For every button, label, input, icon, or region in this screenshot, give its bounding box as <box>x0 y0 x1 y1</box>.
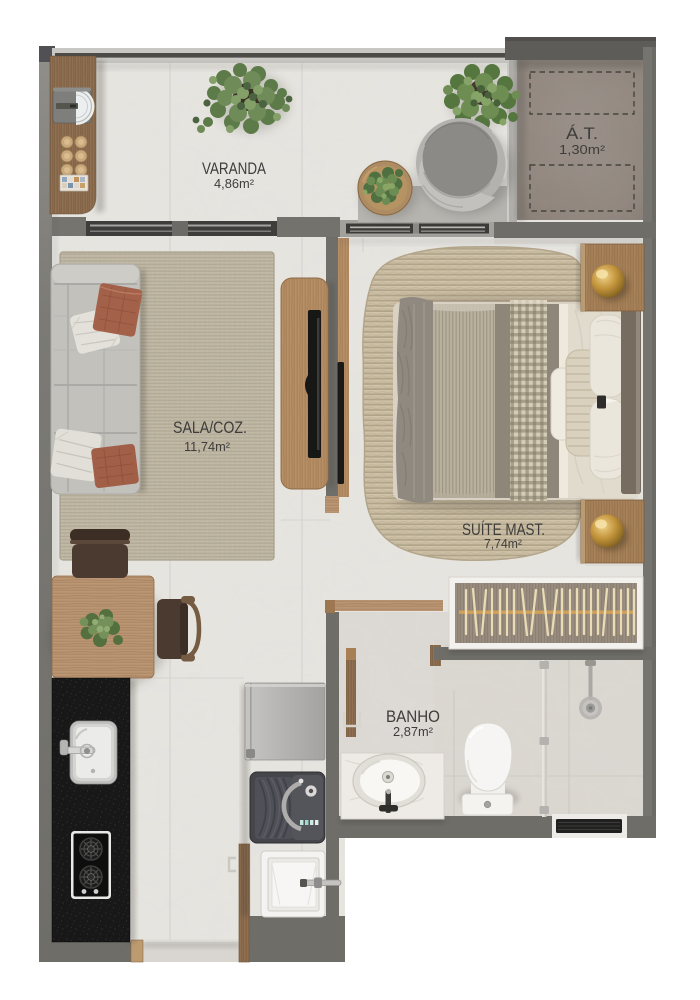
svg-text:Á.T.: Á.T. <box>566 124 598 143</box>
svg-text:1,30m²: 1,30m² <box>559 143 605 157</box>
svg-text:11,74m²: 11,74m² <box>184 440 230 454</box>
svg-text:7,74m²: 7,74m² <box>484 537 522 551</box>
svg-text:SALA/COZ.: SALA/COZ. <box>173 418 247 437</box>
svg-text:2,87m²: 2,87m² <box>393 725 433 739</box>
svg-text:BANHO: BANHO <box>386 707 440 726</box>
svg-text:VARANDA: VARANDA <box>202 159 267 178</box>
svg-text:4,86m²: 4,86m² <box>214 177 254 191</box>
